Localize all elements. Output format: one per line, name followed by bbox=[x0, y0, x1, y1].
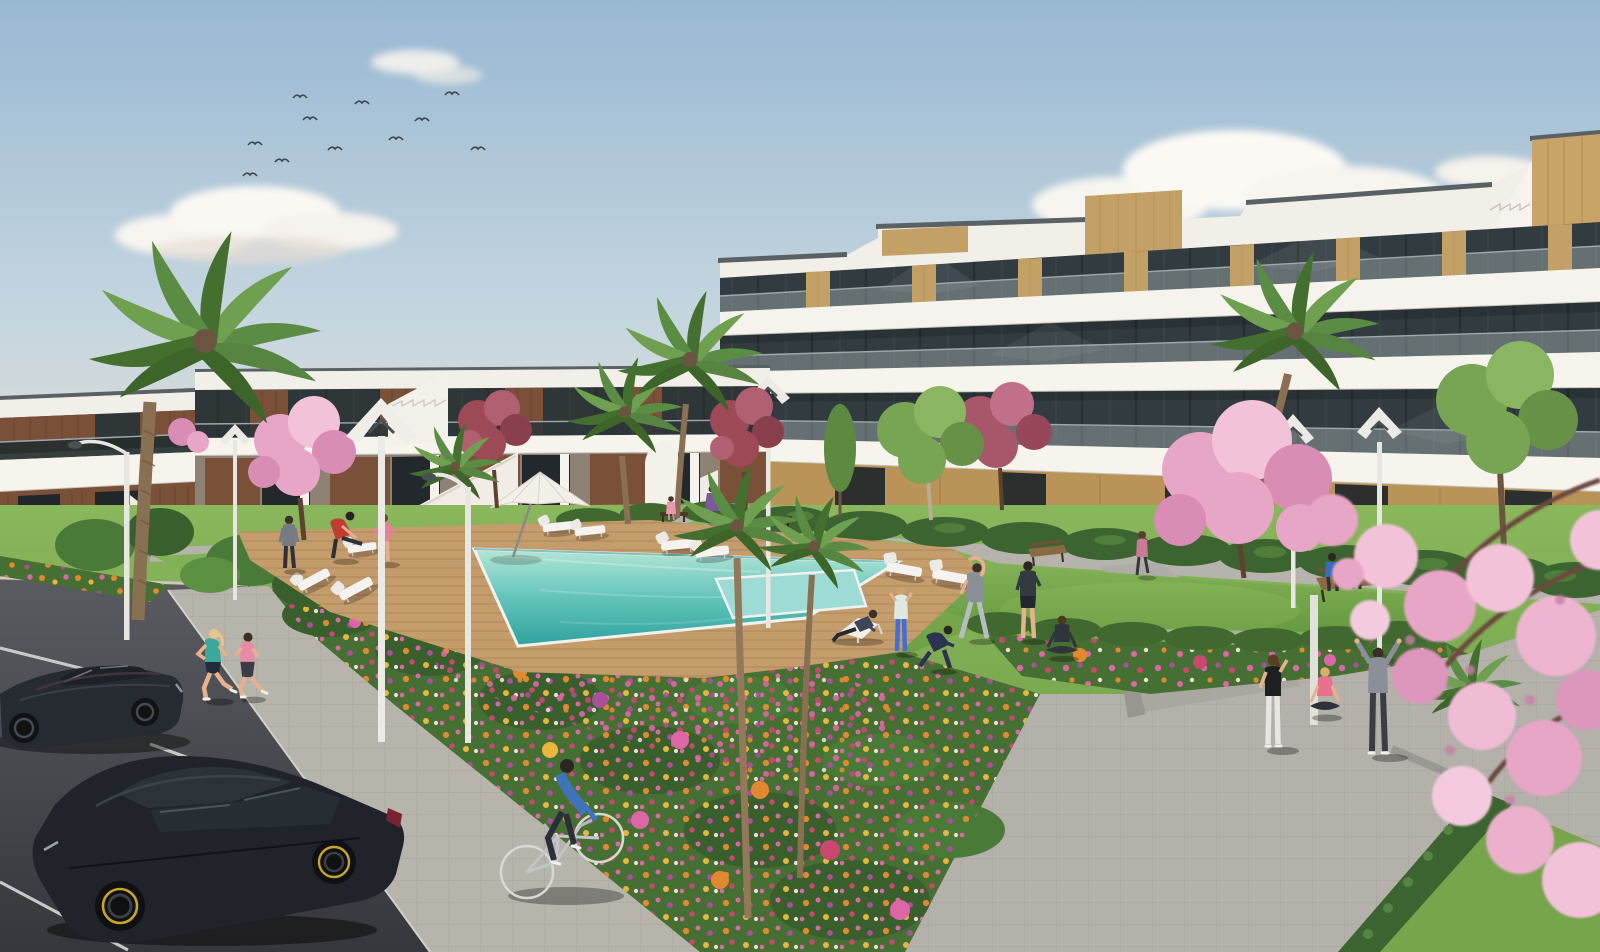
torso bbox=[1317, 676, 1333, 696]
torso bbox=[966, 572, 984, 602]
torso bbox=[1054, 624, 1070, 643]
sedan-wheel bbox=[131, 698, 159, 726]
lamp-pole bbox=[124, 452, 130, 640]
torso bbox=[282, 524, 296, 547]
torso bbox=[666, 502, 676, 514]
torso bbox=[1136, 539, 1148, 558]
cyclist-head bbox=[560, 759, 574, 773]
lamp-head bbox=[422, 473, 436, 481]
flower-cluster bbox=[1193, 655, 1207, 669]
torso bbox=[240, 641, 254, 662]
render-canvas bbox=[0, 0, 1600, 952]
lamp-pole bbox=[233, 440, 237, 600]
scene-svg bbox=[0, 0, 1600, 952]
roof-wood-box bbox=[882, 226, 968, 256]
stair-volume-curved bbox=[645, 440, 678, 505]
trunk bbox=[1000, 468, 1002, 510]
torso bbox=[1020, 570, 1036, 596]
torso bbox=[894, 595, 908, 620]
lamp-pole bbox=[465, 487, 471, 743]
lamp-pole bbox=[378, 436, 385, 742]
torso bbox=[1265, 666, 1281, 696]
torso bbox=[1368, 657, 1388, 693]
torso bbox=[205, 638, 221, 662]
sedan-wheel bbox=[9, 713, 39, 743]
trunk bbox=[1500, 470, 1504, 548]
lamp-head bbox=[68, 441, 82, 449]
flower-cluster bbox=[1324, 654, 1336, 666]
